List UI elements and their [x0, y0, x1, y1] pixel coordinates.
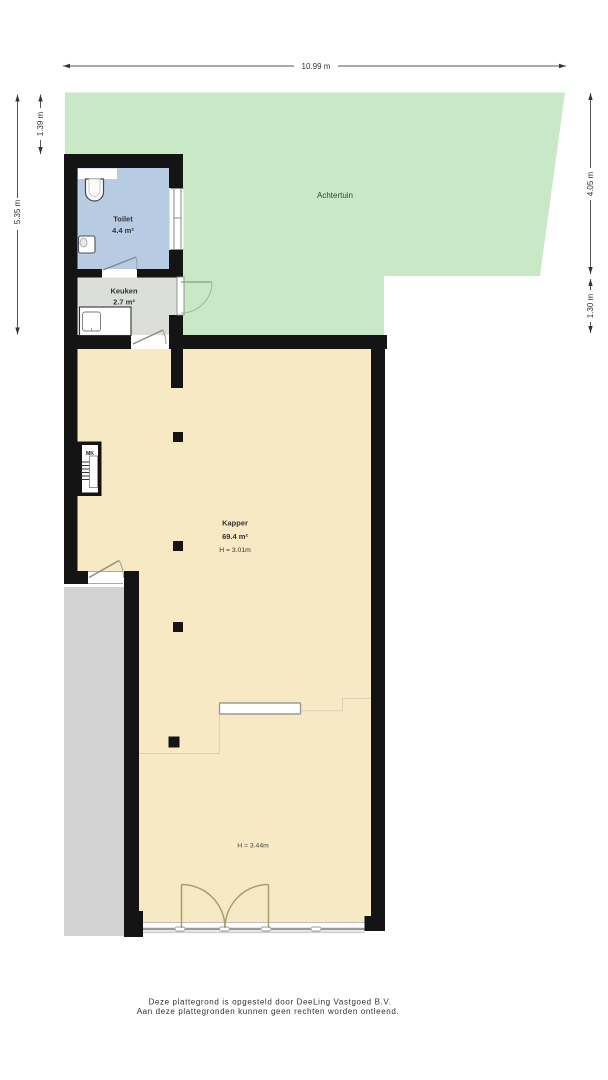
svg-text:69.4 m²: 69.4 m² — [222, 532, 248, 541]
svg-text:5.35 m: 5.35 m — [13, 199, 22, 224]
svg-text:Deze plattegrond is opgesteld: Deze plattegrond is opgesteld door DeeLi… — [149, 998, 392, 1007]
svg-text:Keuken: Keuken — [110, 287, 138, 296]
svg-text:4.05 m: 4.05 m — [586, 171, 595, 196]
svg-text:H = 3.44m: H = 3.44m — [237, 843, 269, 850]
svg-text:Kapper: Kapper — [222, 519, 248, 528]
svg-text:4.4 m²: 4.4 m² — [112, 226, 134, 235]
svg-text:Aan deze plattegronden kunnen: Aan deze plattegronden kunnen geen recht… — [137, 1007, 400, 1016]
svg-text:1.30 m: 1.30 m — [586, 293, 595, 318]
svg-text:Toilet: Toilet — [113, 215, 133, 224]
svg-text:2.7 m²: 2.7 m² — [113, 298, 135, 307]
svg-text:H = 3.01m: H = 3.01m — [219, 547, 251, 554]
svg-text:1.39 m: 1.39 m — [36, 111, 45, 136]
svg-text:10.99 m: 10.99 m — [302, 62, 331, 71]
svg-text:Achtertuin: Achtertuin — [317, 191, 353, 200]
